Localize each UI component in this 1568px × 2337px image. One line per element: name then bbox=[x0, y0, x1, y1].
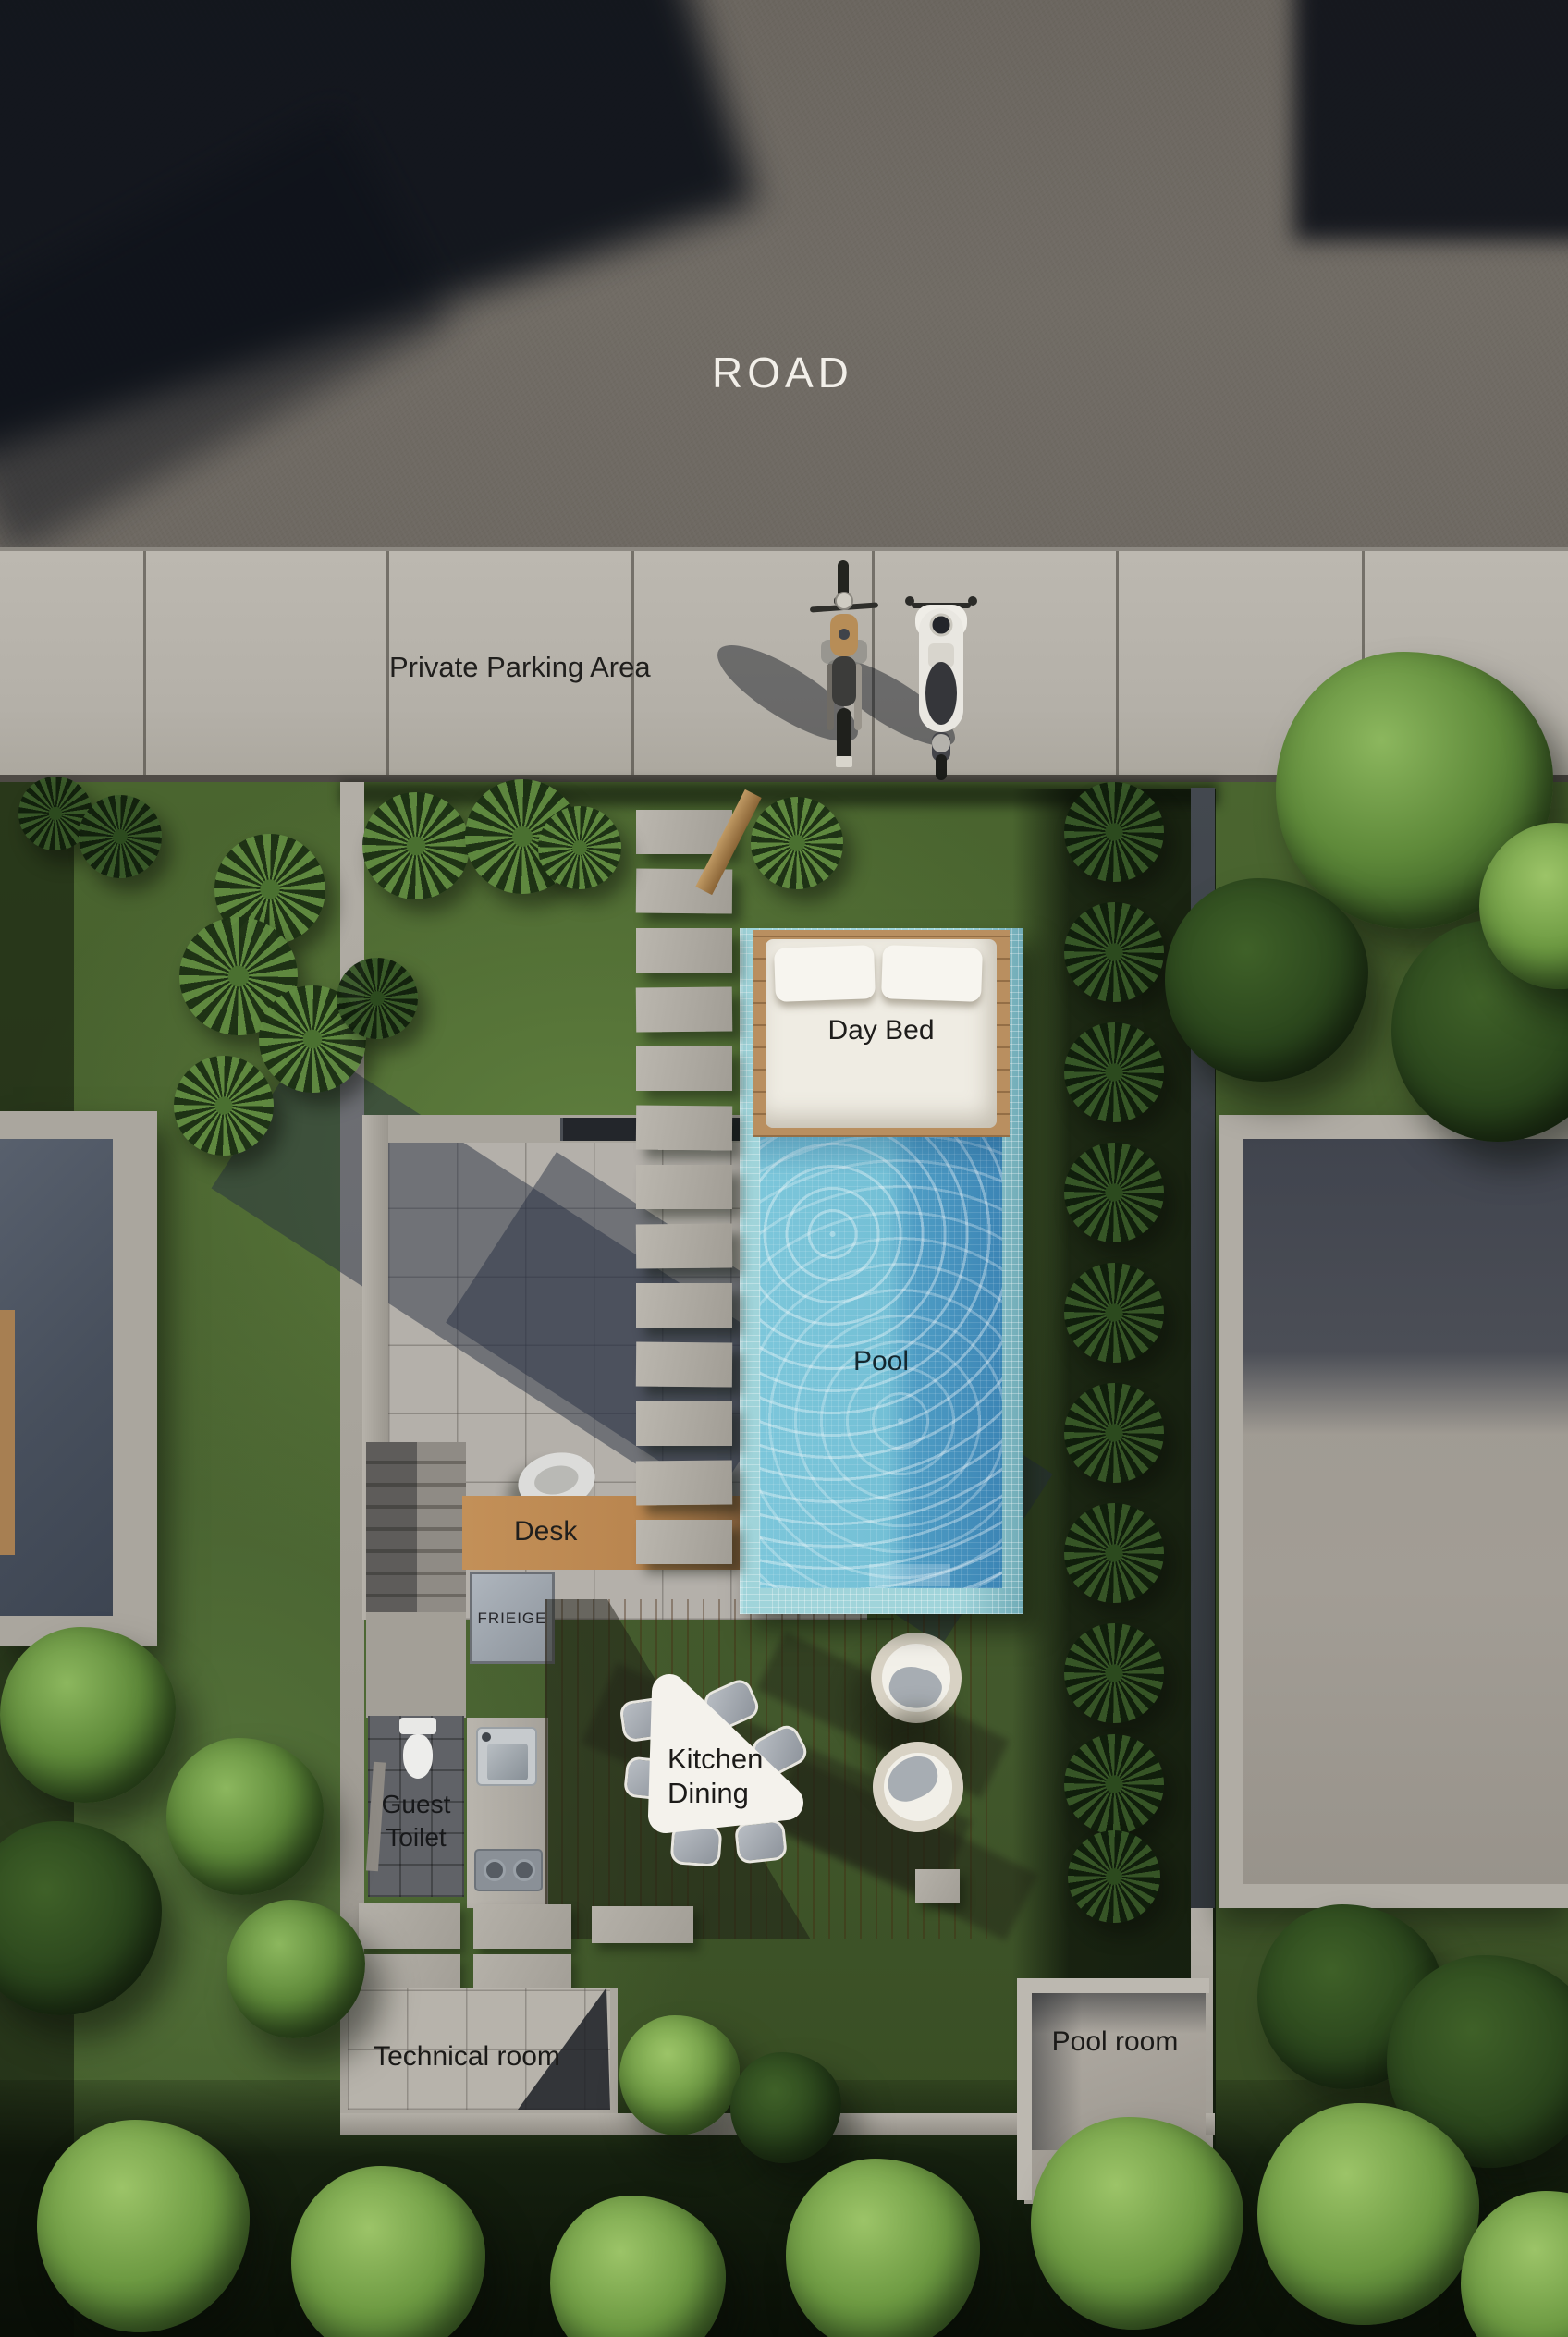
pavement-joint bbox=[143, 551, 146, 775]
palm-tree bbox=[1064, 1263, 1164, 1363]
stepping-stone bbox=[636, 1401, 732, 1446]
guest-toilet-room: Guest Toilet bbox=[368, 1716, 464, 1897]
palm-tree bbox=[337, 958, 418, 1039]
deck-corner-paver bbox=[915, 1869, 960, 1903]
stepping-stone bbox=[636, 1461, 732, 1506]
kitchen-dining-line1: Kitchen bbox=[668, 1742, 763, 1776]
palm-tree bbox=[79, 795, 162, 878]
tree bbox=[786, 2159, 980, 2337]
palm-tree bbox=[751, 797, 843, 889]
technical-room-label: Technical room bbox=[351, 2041, 582, 2073]
burner-icon bbox=[513, 1859, 535, 1881]
palm-tree bbox=[1064, 1143, 1164, 1242]
paver bbox=[473, 1904, 571, 1949]
fridge: FRIEIGE bbox=[470, 1572, 555, 1664]
road-surface: ROAD bbox=[0, 0, 1568, 547]
palm-tree bbox=[1064, 1734, 1164, 1834]
stair-landing bbox=[366, 1612, 466, 1718]
palm-tree bbox=[1064, 1022, 1164, 1122]
kitchen-dining-line2: Dining bbox=[668, 1776, 763, 1810]
guest-toilet-label-2: Toilet bbox=[368, 1823, 464, 1853]
parking-label: Private Parking Area bbox=[389, 651, 651, 684]
neighbor-building-left-wood bbox=[0, 1310, 15, 1555]
stepping-stone bbox=[636, 1520, 732, 1564]
building-shadow-road-right bbox=[1294, 0, 1568, 240]
pool-room-label: Pool room bbox=[1024, 2026, 1206, 2058]
faucet-icon bbox=[482, 1732, 491, 1742]
stepping-stone bbox=[636, 986, 732, 1032]
road-label: ROAD bbox=[712, 348, 853, 398]
desk-label: Desk bbox=[514, 1516, 577, 1548]
parked-vehicles bbox=[793, 555, 989, 788]
pavement-joint bbox=[1116, 551, 1119, 775]
palm-tree bbox=[1064, 1623, 1164, 1723]
neighbor-concrete-pad bbox=[1219, 1115, 1568, 1908]
stairs-shadow bbox=[366, 1442, 417, 1616]
fridge-label: FRIEIGE bbox=[472, 1609, 552, 1628]
daybed: Day Bed bbox=[766, 939, 997, 1128]
palm-tree bbox=[1064, 782, 1164, 882]
palm-tree bbox=[1068, 1830, 1160, 1923]
pool-room-shadow bbox=[1032, 1993, 1082, 2150]
palm-tree bbox=[174, 1056, 274, 1156]
kitchen-dining-label: Kitchen Dining bbox=[668, 1742, 763, 1810]
pool-step bbox=[869, 1564, 950, 1586]
neighbor-building-left bbox=[0, 1111, 157, 1646]
paver bbox=[592, 1906, 693, 1943]
cooktop-icon bbox=[474, 1849, 543, 1891]
burner-icon bbox=[484, 1859, 506, 1881]
neighbor-building-left-roof bbox=[0, 1139, 113, 1616]
sink-basin bbox=[487, 1744, 528, 1780]
toilet-bowl bbox=[403, 1734, 433, 1779]
daybed-label: Day Bed bbox=[766, 1015, 997, 1046]
stepping-stone bbox=[636, 1224, 732, 1269]
pool-room-wall-left bbox=[1017, 1978, 1032, 2200]
lounge-chair bbox=[871, 1633, 962, 1723]
toilet-icon bbox=[399, 1718, 436, 1734]
palm-tree bbox=[1064, 1383, 1164, 1483]
pool-label: Pool bbox=[760, 1346, 1002, 1377]
stepping-stone bbox=[636, 1342, 732, 1388]
pool-water bbox=[760, 1096, 1002, 1588]
stepping-stone bbox=[636, 1106, 732, 1151]
stairs bbox=[366, 1442, 466, 1616]
palm-tree bbox=[1064, 902, 1164, 1002]
paver bbox=[359, 1903, 460, 1949]
pool-room-wall-top bbox=[1017, 1978, 1209, 1993]
scooter-icon bbox=[905, 596, 977, 780]
kitchen-counter bbox=[467, 1718, 548, 1908]
stepping-stone bbox=[636, 928, 732, 973]
stepping-stone bbox=[636, 1283, 732, 1328]
palm-tree bbox=[1064, 1503, 1164, 1603]
palm-tree bbox=[362, 792, 470, 899]
guest-toilet-label-1: Guest bbox=[368, 1790, 464, 1819]
stepping-stone bbox=[636, 1046, 732, 1091]
site-plan: ROAD Private Parking Area bbox=[0, 0, 1568, 2337]
pillow bbox=[774, 945, 876, 1002]
pillow bbox=[881, 945, 983, 1002]
stepping-stone bbox=[636, 1165, 732, 1209]
neighbor-pad-shadow bbox=[1243, 1139, 1568, 1435]
palm-tree bbox=[538, 806, 621, 889]
sink-icon bbox=[476, 1727, 537, 1786]
